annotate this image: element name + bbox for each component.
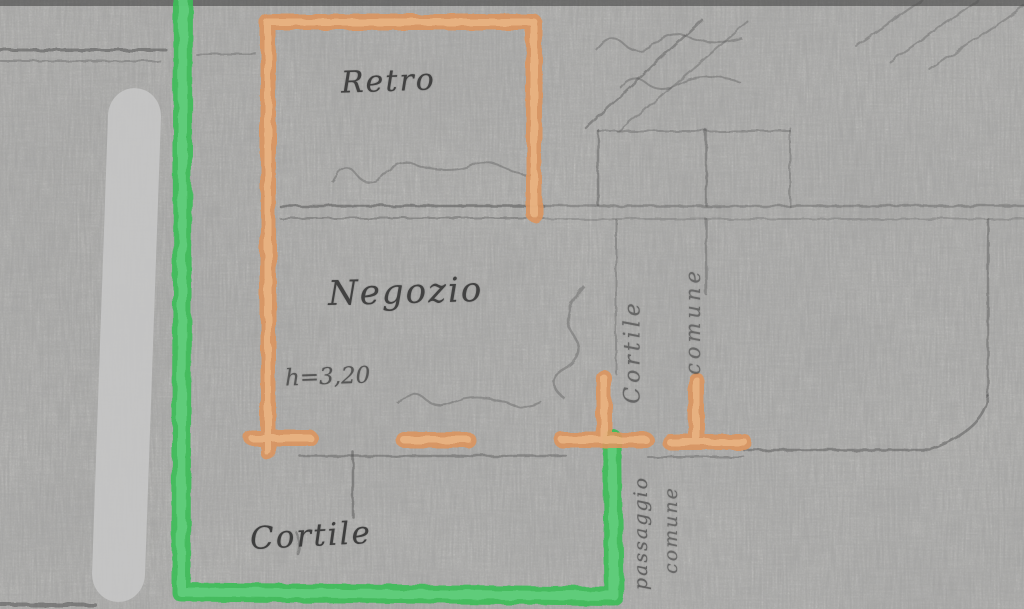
scan-top-edge bbox=[0, 0, 1024, 6]
floor-plan-scan: Retro Negozio h=3,20 Cortile Cortile com… bbox=[0, 0, 1024, 609]
plan-drawing bbox=[0, 0, 1024, 609]
